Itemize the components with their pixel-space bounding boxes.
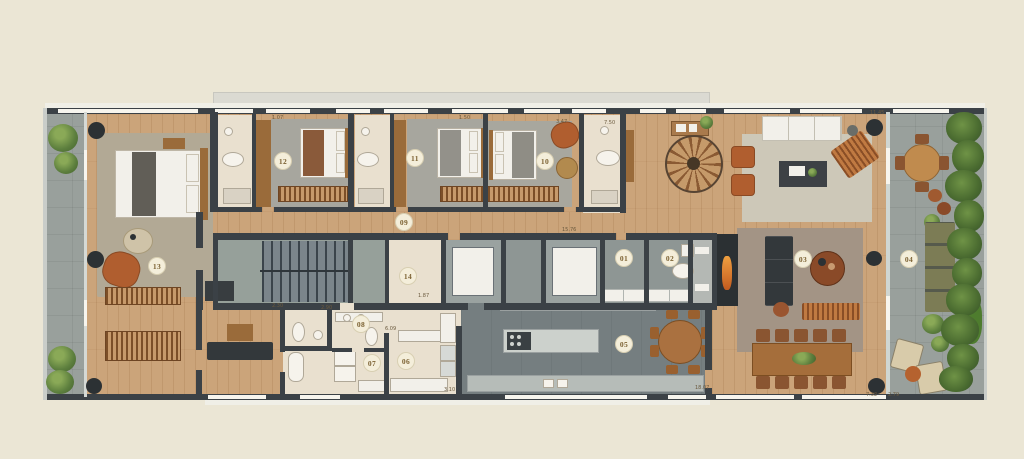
dimension-label: 3.47 [556,120,567,125]
clothes-rack [440,186,485,202]
balcony-plant [48,124,78,152]
dimension-label: 2.30 [272,304,283,309]
terrace-chair [895,156,905,170]
room-badge-10: 10 [536,152,554,170]
wall [196,370,202,394]
balcony-plant [48,346,76,372]
terrace-door [886,296,890,330]
master-side-table [123,228,153,254]
bath12-shower [223,188,251,204]
bath08-basin [343,314,351,322]
dining-sofa [765,236,793,306]
wardrobe-12 [256,120,271,207]
corridor-cabinet [205,281,234,301]
clothes-rack [105,331,181,361]
kitchen-counter [467,375,704,392]
door-gap [616,233,626,240]
bed-12-pillow [336,153,345,173]
master-shelf [163,138,185,149]
core-north-wall [213,233,712,240]
window [505,395,647,399]
coffee-table-plate [818,258,826,266]
bath10-tub [596,150,620,166]
master-pillow [186,185,199,213]
fridge [440,345,456,361]
stool [650,327,659,339]
dimension-label: 15.76 [562,228,576,233]
hedge [947,228,982,260]
dining-chair [832,376,846,389]
bath10-sink [600,126,609,135]
console-object [676,124,686,132]
room-badge-05: 05 [615,335,633,353]
bed-10-blanket [512,132,534,178]
stool [666,310,678,319]
bed-10-pillow [495,132,504,152]
door-gap [396,207,408,212]
staircase-flight-upper [262,241,352,270]
hedge [954,200,984,232]
balcony-door [84,300,87,326]
master-headboard [200,148,208,220]
dimension-label: 1.50 [459,116,470,121]
window [716,395,794,399]
pantry-column [440,313,456,343]
coffee-table-tray [789,166,805,176]
console-object [689,124,697,132]
kitchen-sink [557,379,568,388]
dining-chair [813,376,827,389]
terrace-pouf [937,202,951,215]
window [893,109,949,113]
dimension-label: 3.10 [444,388,455,393]
window [800,109,862,113]
slatted-bench [802,303,860,320]
terrace-door [886,148,890,184]
bath11-tub [357,152,379,167]
dining-chair [794,376,808,389]
wall [644,240,649,303]
wc-sink [313,330,323,340]
hedge [946,284,981,316]
coffee-table-plate [828,263,835,270]
bath11-sink [361,127,370,136]
room-badge-02: 02 [661,249,679,267]
dining-chair [756,329,770,342]
kitchen-sink [543,379,554,388]
dimension-label: 1.87 [418,294,429,299]
window [524,109,560,113]
bed-12-pillow [336,131,345,151]
fireplace-fire [722,256,732,290]
room-badge-01: 01 [615,249,633,267]
dining-chair [756,376,770,389]
balcony-plant [46,370,74,394]
wall [579,113,584,207]
bath10-shower [591,190,618,204]
wall [541,240,546,303]
dining-chair [794,329,808,342]
closet-sofa [207,342,273,360]
clothes-rack [487,186,559,202]
room-badge-07: 07 [363,354,381,372]
living-pouf-small [847,125,858,136]
door-gap [352,348,364,352]
wall [327,310,332,350]
table-centerpiece [792,352,816,365]
laundry-shelf [358,380,386,392]
clothes-rack [105,287,181,305]
bed-10-pillow [495,154,504,174]
elevator-1-car [452,247,494,296]
door-gap [262,207,274,212]
terrace-table [903,144,941,182]
room-badge-13: 13 [148,257,166,275]
dimension-label: 1.07 [272,116,283,121]
wall [385,240,389,303]
wall [213,240,218,303]
terrace-chair [939,156,949,170]
column-dot [86,378,102,394]
burner [510,335,514,339]
stool [688,365,700,374]
hedge [941,314,979,346]
door-gap [564,207,576,212]
dryer [334,366,356,382]
dimension-label: 2.90 [321,306,332,311]
bath12-tub [222,152,244,167]
duct-panel [695,247,709,254]
dimension-label: 7.50 [604,121,615,126]
room-badge-04: 04 [900,250,918,268]
entry-door [640,109,666,113]
side-table-10 [556,157,578,179]
wall [456,326,462,394]
left-parapet [43,108,47,400]
window [724,109,790,113]
bed-11-pillow [469,131,478,151]
stool [666,365,678,374]
bath12-sink [224,127,233,136]
spiral-staircase-center [687,157,700,170]
staircase-flight-lower [262,272,352,302]
stool [688,310,700,319]
hall-14-floor [388,240,445,303]
door-gap [468,303,484,310]
stair-landing-right [352,240,388,303]
master-pillow [186,154,199,182]
burner [517,342,521,346]
bottom-parapet [205,400,710,405]
kitchen-round-table [658,320,702,364]
wall [390,113,394,207]
wall [600,240,605,303]
dining-chair [832,329,846,342]
window [452,109,508,113]
wall [196,310,202,350]
wall [441,240,446,303]
door-gap [448,233,460,240]
clothes-rack [278,186,348,202]
bed-11-pillow [469,153,478,173]
dining-chair [775,329,789,342]
room-badge-11: 11 [406,149,424,167]
balcony-plant [54,152,78,174]
wall [483,113,488,207]
wall [252,113,256,207]
round-coffee-table [810,251,845,286]
terrace-pouf [928,189,942,202]
elevator-2-car [552,247,597,296]
bathtub [288,352,304,382]
dimension-label: 18.07 [695,386,709,391]
wall [210,112,218,212]
right-parapet [984,108,987,400]
living-pouf [866,119,883,136]
wall [196,270,203,310]
dining-chair [813,329,827,342]
dimension-label: 6.09 [385,327,396,332]
pantry-counter [398,330,442,342]
room-badge-12: 12 [274,152,292,170]
burner [510,342,514,346]
wall [705,310,712,370]
master-bed-throw [132,152,156,216]
column-dot [88,122,105,139]
hedge [945,170,982,202]
wc-toilet [292,322,305,342]
side-table-tray [130,234,136,240]
floor-plan: 01 02 03 04 05 06 07 08 09 10 11 12 13 1… [0,0,1024,459]
living-armchair [731,174,755,196]
hedge [939,366,973,392]
dimension-label: 2.79 [888,393,899,398]
stool [650,345,659,357]
window [668,395,706,399]
bed-12-blanket [303,130,324,176]
window [300,395,340,399]
bed-10-headboard [489,130,493,180]
room-badge-14: 14 [399,267,417,285]
wall [501,240,506,303]
window [572,109,606,113]
freezer [440,361,456,377]
living-armchair [731,146,755,168]
lounge-side-table [905,366,921,382]
wall [620,113,626,213]
duct-panel [695,284,709,291]
floor-lamp [866,251,882,266]
balcony-door [84,150,87,180]
core-south-wall [213,303,712,310]
dimension-label: 11.45 [870,111,884,116]
room-badge-08: 08 [352,315,370,333]
dimension-label: 7.32 [866,393,877,398]
bed-11-blanket [440,130,461,176]
wall [688,240,693,303]
burner [517,335,521,339]
washer [334,350,356,366]
window [208,395,266,399]
pantry-counter-lower [390,378,448,392]
column-dot [87,251,104,268]
hedge [952,140,984,174]
hedge [946,112,982,144]
terrace-chair [915,134,929,144]
terrace-chair [915,182,929,192]
dining-chair [775,376,789,389]
window [215,109,253,113]
room-badge-06: 06 [397,352,415,370]
service-lobby-floor [501,240,545,303]
window [58,109,198,113]
wall [348,240,353,303]
staircase-divider [260,270,352,272]
window [266,109,310,113]
wall [348,113,354,207]
room-badge-09: 09 [395,213,413,231]
wall [196,212,203,248]
side-table-round [773,302,789,317]
wall [280,372,285,394]
wall [384,333,389,394]
wall [712,233,717,310]
bath11-shower [358,188,384,204]
wall [283,346,332,351]
living-sofa [762,116,842,141]
room-badge-03: 03 [794,250,812,268]
coffee-table-plant [808,168,817,177]
window [676,109,706,113]
door-gap [340,303,354,310]
console-plant [700,116,713,129]
closet-bench [227,324,253,341]
